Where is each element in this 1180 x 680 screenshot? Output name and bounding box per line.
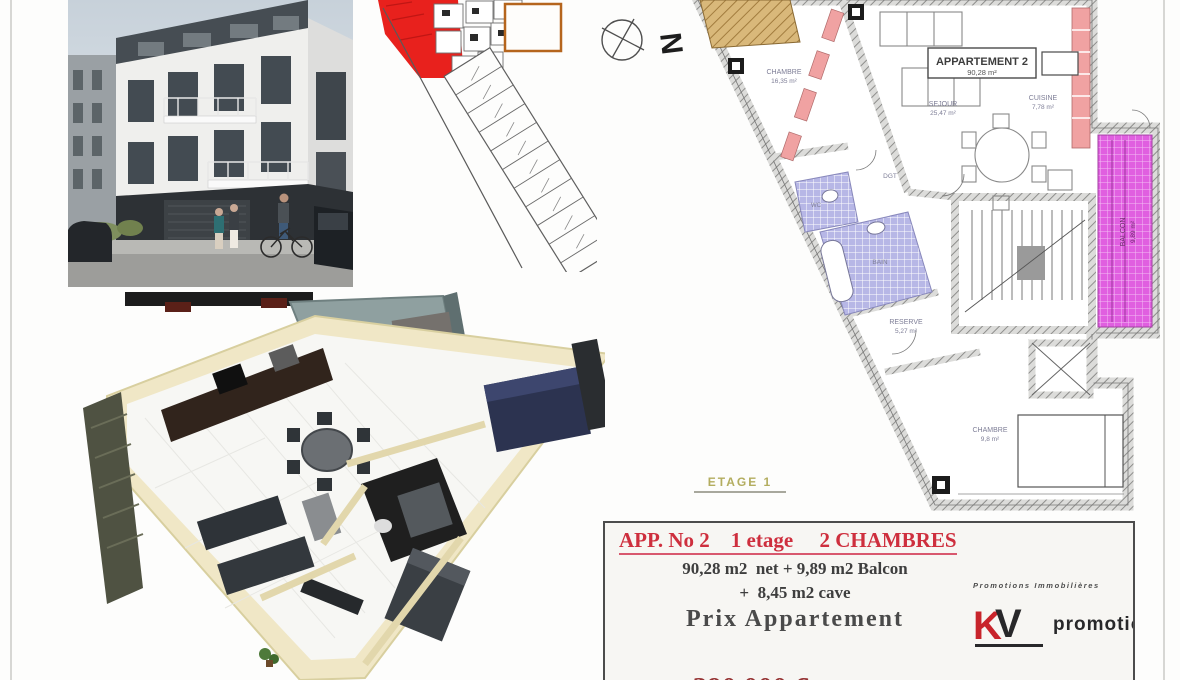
svg-text:BAIN: BAIN [872, 259, 887, 266]
document-page: N [0, 0, 1180, 680]
floor-plan-svg: APPARTEMENT 2 90,28 m² CHAMBRE 16,35 m² … [680, 0, 1160, 512]
svg-text:16,35 m²: 16,35 m² [771, 78, 797, 85]
apartment-side-box [1042, 52, 1078, 75]
area-line: 90,28 m2 net + 9,89 m2 Balcon [605, 557, 985, 581]
logo-name: promotions [1053, 614, 1135, 636]
logo-tagline: Promotions Immobilières [973, 581, 1123, 590]
apartment-area: 90,28 m² [967, 68, 997, 77]
svg-text:BALCON: BALCON [1120, 218, 1127, 247]
stair-landing [1017, 246, 1045, 280]
svg-text:7,78 m²: 7,78 m² [1032, 104, 1055, 111]
plan-3d [65, 288, 605, 680]
planter [165, 302, 191, 312]
svg-text:DGT: DGT [883, 173, 897, 180]
floor-level-label: ETAGE 1 [694, 475, 786, 493]
building-photo [68, 0, 353, 292]
site-plan [372, 0, 597, 277]
dining-table-3d [302, 429, 352, 471]
logo-letter-v: V [995, 604, 1022, 644]
svg-text:SEJOUR: SEJOUR [929, 101, 957, 108]
price-text-block: 90,28 m2 net + 9,89 m2 Balcon + 8,45 m2 … [605, 557, 985, 680]
compass-svg: N [592, 6, 687, 81]
site-plan-svg [372, 0, 597, 272]
compass: N [592, 6, 687, 86]
floor-plan: APPARTEMENT 2 90,28 m² CHAMBRE 16,35 m² … [680, 0, 1160, 517]
page-border-left [10, 0, 12, 680]
svg-text:WC: WC [811, 203, 822, 209]
svg-text:5,27 m²: 5,27 m² [895, 328, 918, 335]
planter-2 [261, 298, 287, 308]
kv-logo: K V promotions [973, 606, 1123, 652]
svg-text:CHAMBRE: CHAMBRE [766, 69, 801, 76]
car-right-window [318, 213, 348, 230]
wall-hall [908, 192, 955, 197]
site-orange-parcel [505, 4, 561, 51]
price-value: 390.000 € [693, 672, 816, 680]
plan-3d-svg [65, 288, 605, 680]
car-left [68, 221, 112, 262]
bed-2 [1018, 415, 1123, 487]
page-border-right [1163, 0, 1165, 680]
building-photo-svg [68, 0, 353, 287]
svg-text:9,8 m²: 9,8 m² [981, 436, 1000, 443]
site-parking-row [444, 48, 597, 272]
apartment-title: APP. No 2 1 etage 2 CHAMBRES [619, 528, 957, 555]
apartment-label: APPARTEMENT 2 [936, 56, 1028, 68]
sink-3d-2 [374, 519, 392, 533]
price-label: Prix Appartement [605, 604, 985, 634]
svg-text:25,47 m²: 25,47 m² [930, 110, 956, 117]
logo-underline [975, 644, 1043, 647]
kitchen-counter [1072, 8, 1090, 148]
svg-text:CHAMBRE: CHAMBRE [972, 427, 1007, 434]
cave-line: + 8,45 m2 cave [605, 581, 985, 604]
svg-text:RESERVE: RESERVE [889, 319, 923, 326]
price-line: 390.000 € (taux réduit) [605, 634, 985, 680]
company-logo: Promotions Immobilières K V promotions [973, 581, 1123, 652]
side-window [316, 72, 346, 140]
bush-2 [117, 220, 143, 236]
svg-text:CUISINE: CUISINE [1029, 95, 1058, 102]
wood-balcony [700, 0, 800, 48]
price-box: APP. No 2 1 etage 2 CHAMBRES 90,28 m2 ne… [603, 521, 1135, 680]
svg-text:9,89 m²: 9,89 m² [1130, 220, 1137, 243]
